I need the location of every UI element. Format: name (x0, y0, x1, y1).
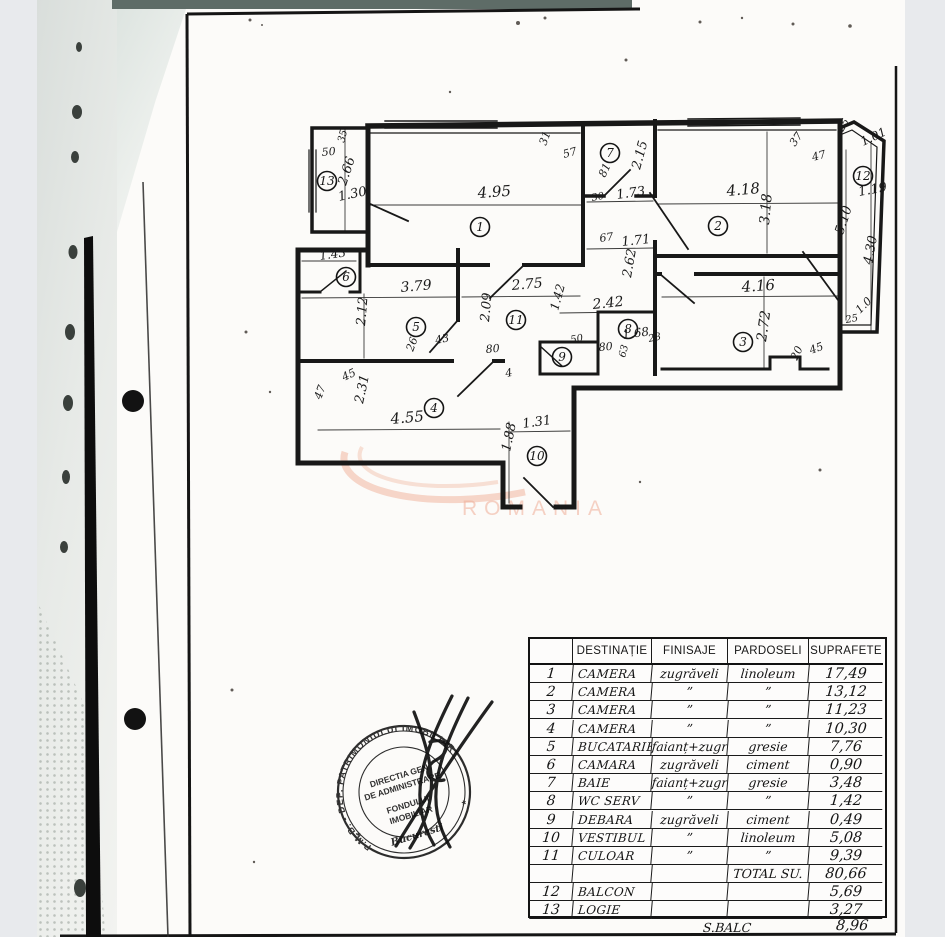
dimension-label: 5.10 (833, 204, 856, 236)
dimension-label: 25 (844, 313, 859, 326)
dimension-label: 1.73 (615, 184, 646, 203)
svg-text:1: 1 (476, 220, 484, 234)
table-cell-no: 8 (529, 792, 574, 810)
table-cell-sup: 13,12 (808, 683, 884, 701)
table-cell-no (529, 865, 574, 883)
dimension-label: 2.09 (478, 292, 496, 323)
dimension-label: 81 (596, 161, 614, 179)
table-cell-fin (651, 883, 729, 901)
table-cell-dest: BALCON (572, 883, 653, 901)
dimension-label: 1.42 (547, 282, 567, 311)
room-number-1: 1 (471, 218, 490, 237)
table-cell-par: gresie (727, 774, 810, 792)
table-cell-fin: ” (651, 792, 729, 810)
svg-text:4: 4 (429, 401, 438, 415)
table-cell-dest: VESTIBUL (572, 829, 653, 847)
table-cell-par: gresie (727, 738, 810, 756)
table-cell-no: 4 (529, 720, 574, 738)
dimension-label: 3.79 (400, 277, 433, 296)
dimension-label: 2.15 (629, 139, 651, 172)
table-cell-par: TOTAL SU. (727, 865, 810, 883)
table-cell-dest: CAMERA (572, 665, 653, 683)
table-cell-no: 10 (529, 829, 574, 847)
table-cell-fin: zugrăveli (651, 811, 729, 829)
dimension-label: 31 (537, 129, 554, 147)
dimension-label: 50 (570, 333, 585, 346)
dimension-label: 1.31 (521, 413, 552, 432)
table-cell-fin: faianț+zugr (651, 738, 729, 756)
dimension-label: 26 (403, 335, 420, 354)
table-header-cell (530, 639, 573, 665)
page-edge-bar (84, 236, 101, 937)
table-footer: S.BALC 8,96 (528, 918, 887, 937)
room-number-4: 4 (425, 399, 444, 418)
room-number-3: 3 (734, 333, 753, 352)
svg-text:2: 2 (713, 219, 722, 233)
dimension-label: 1.68 (621, 324, 650, 342)
svg-text:12: 12 (855, 169, 870, 183)
dimension-label: 3.18 (757, 193, 776, 226)
table-cell-dest: DEBARA (572, 811, 653, 829)
table-cell-no: 5 (529, 738, 574, 756)
table-cell-fin (651, 865, 729, 883)
official-stamp: P.M.B. - DEP. PATRIMONIULUI IMOBILIAR DI… (317, 707, 487, 876)
table-cell-par: ” (727, 683, 810, 701)
table-header-cell: PARDOSELI (728, 639, 809, 665)
room-number-5: 5 (407, 318, 426, 337)
dimension-label: 67 (599, 230, 615, 245)
dimension-label: 47 (809, 148, 827, 164)
table-cell-sup: 80,66 (808, 865, 884, 883)
table-cell-sup: 1,42 (808, 792, 884, 810)
room-number-7: 7 (601, 144, 620, 163)
dimension-label: 50 (321, 145, 336, 159)
table-cell-no: 7 (529, 774, 574, 792)
table-cell-sup: 5,08 (808, 829, 884, 847)
dimension-label: 1.88 (499, 421, 520, 452)
table-cell-par: linoleum (727, 665, 810, 683)
dimension-label: 43 (433, 331, 450, 347)
svg-text:7: 7 (606, 146, 614, 160)
table-cell-sup: 3,48 (808, 774, 884, 792)
dimension-labels: 4.953.184.182.15811.7330671.713157374725… (311, 117, 888, 453)
table-cell-no: 6 (529, 756, 574, 774)
dimension-label: 35 (336, 129, 350, 144)
table-cell-no: 9 (529, 811, 574, 829)
dimension-label: 45 (339, 366, 358, 384)
dimension-label: 80 (598, 340, 613, 354)
dimension-label: 47 (311, 383, 328, 402)
dimension-label: 28 (646, 332, 662, 346)
table-cell-par (727, 901, 810, 919)
hole-punch-bottom (124, 708, 146, 730)
table-cell-dest: BUCATARIE (572, 738, 653, 756)
room-number-10: 10 (528, 447, 547, 466)
dimension-label: 2.42 (591, 294, 625, 313)
table-cell-par: ” (727, 701, 810, 719)
table-cell-par: ” (727, 720, 810, 738)
table-cell-fin (651, 901, 729, 919)
dimension-label: 30 (591, 191, 606, 204)
dimension-label: 4.95 (476, 182, 512, 202)
table-cell-fin: ” (651, 683, 729, 701)
table-cell-par: ” (727, 792, 810, 810)
dimension-label: 2.66 (335, 155, 359, 188)
dimension-label: 20 (788, 344, 806, 363)
table-cell-sup: 17,49 (808, 665, 884, 683)
dimension-label: 2.62 (620, 248, 640, 280)
table-cell-dest: CAMERA (572, 683, 653, 701)
svg-text:13: 13 (319, 174, 335, 188)
dimension-label: 2.72 (754, 309, 774, 343)
room-number-2: 2 (709, 217, 728, 236)
table-cell-dest: BAIE (572, 774, 653, 792)
dimension-label: 80 (485, 342, 500, 356)
table-cell-dest: CAMARA (572, 756, 653, 774)
table-cell-fin: ” (651, 829, 729, 847)
svg-text:6: 6 (342, 270, 350, 284)
table-cell-par: ” (727, 847, 810, 865)
table-cell-no: 1 (529, 665, 574, 683)
sleeve-holes (60, 42, 86, 897)
page-under-edge (143, 182, 168, 937)
dimension-label: 45 (807, 340, 826, 357)
table-cell-dest: LOGIE (572, 901, 653, 919)
table-cell-no: 2 (529, 683, 574, 701)
table-cell-par: linoleum (727, 829, 810, 847)
svg-text:3: 3 (739, 335, 747, 349)
hole-punch-top (122, 390, 144, 412)
dimension-label: 4.18 (725, 179, 761, 200)
dimension-label: 1.43 (318, 245, 347, 263)
dimension-label: 4 (503, 366, 513, 380)
svg-text:9: 9 (558, 350, 566, 364)
table-cell-fin: ” (651, 847, 729, 865)
table-cell-no: 11 (529, 847, 574, 865)
table-cell-dest: CAMERA (572, 701, 653, 719)
watermark-text: ROMANIA (462, 497, 609, 520)
footer-label: S.BALC (702, 920, 751, 935)
room-number-13: 13 (318, 172, 337, 191)
table-cell-dest: CULOAR (572, 847, 653, 865)
svg-text:10: 10 (529, 449, 545, 463)
table-cell-fin: ” (651, 720, 729, 738)
scanned-floorplan-sheet: ROMANIA (0, 0, 945, 937)
dimension-label: 2.12 (354, 296, 372, 327)
dimension-label: 1.30 (337, 184, 368, 205)
table-cell-no: 12 (529, 883, 574, 901)
svg-text:11: 11 (508, 313, 523, 327)
table-cell-par: ciment (727, 756, 810, 774)
table-cell-sup: 5,69 (808, 883, 884, 901)
floor-plan-walls (298, 118, 884, 507)
table-cell-dest: WC SERV (572, 792, 653, 810)
table-cell-sup: 11,23 (808, 701, 884, 719)
table-cell-sup: 3,27 (808, 901, 884, 919)
table-header-cell: FINISAJE (652, 639, 728, 665)
table-cell-sup: 0,90 (808, 756, 884, 774)
table-cell-fin: zugrăveli (651, 665, 729, 683)
table-header-cell: SUPRAFETE (809, 639, 883, 665)
footer-value: 8,96 (835, 918, 869, 934)
room-number-9: 9 (553, 348, 572, 367)
dimension-label: 57 (561, 145, 578, 161)
table-cell-fin: faianț+zugr (651, 774, 729, 792)
table-cell-sup: 9,39 (808, 847, 884, 865)
room-number-11: 11 (507, 311, 526, 330)
table-cell-par (727, 883, 810, 901)
dimension-label: 2.75 (510, 275, 544, 294)
table-cell-no: 13 (529, 901, 574, 919)
svg-text:5: 5 (412, 320, 420, 334)
areas-table: DESTINAȚIEFINISAJEPARDOSELISUPRAFETE1CAM… (528, 637, 887, 918)
table-cell-fin: zugrăveli (651, 756, 729, 774)
dimension-label: 4.55 (389, 407, 425, 428)
dimension-label: 63 (617, 344, 631, 359)
table-cell-sup: 10,30 (808, 720, 884, 738)
table-cell-dest: CAMERA (572, 720, 653, 738)
table-cell-par: ciment (727, 811, 810, 829)
table-cell-dest (572, 865, 653, 883)
table-header-cell: DESTINAȚIE (573, 639, 652, 665)
table-cell-fin: ” (651, 701, 729, 719)
dimension-label: 1.71 (621, 232, 651, 250)
table-cell-sup: 7,76 (808, 738, 884, 756)
table-cell-no: 3 (529, 701, 574, 719)
table-cell-sup: 0,49 (808, 811, 884, 829)
dimension-label: 37 (787, 130, 806, 149)
dimension-label: 4.16 (740, 276, 776, 296)
